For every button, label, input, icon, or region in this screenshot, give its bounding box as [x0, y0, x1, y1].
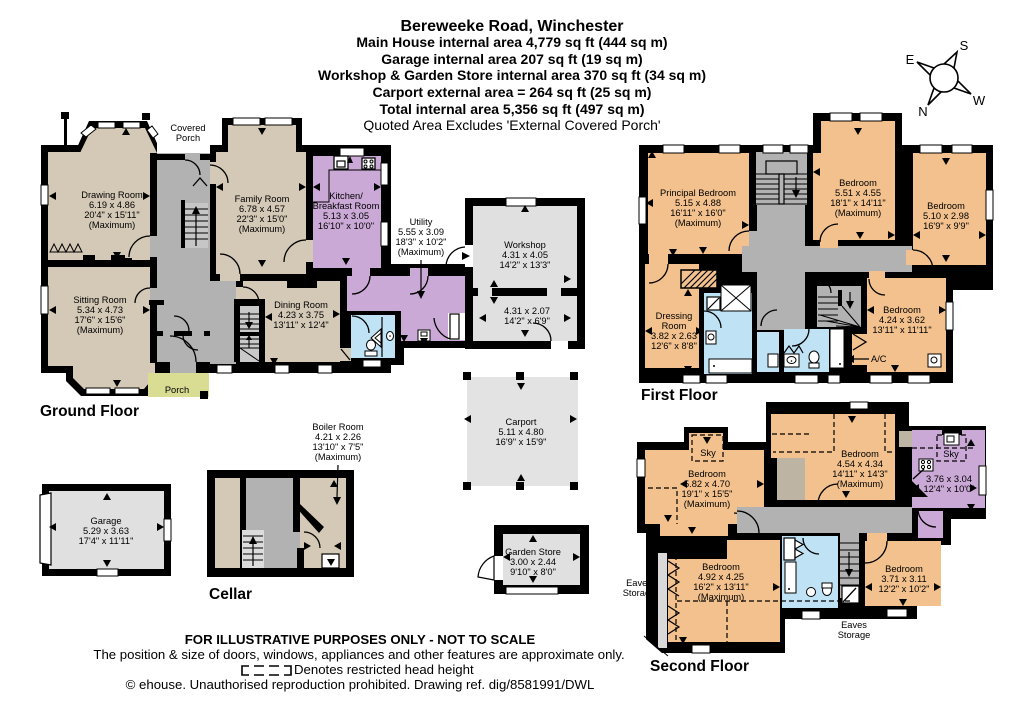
- svg-text:The position & size of doors,: The position & size of doors, windows, a…: [93, 647, 624, 662]
- svg-text:3.71 x 3.11: 3.71 x 3.11: [881, 574, 926, 584]
- svg-text:19'1" x 15'5": 19'1" x 15'5": [682, 489, 733, 499]
- svg-text:12'2" x 10'2": 12'2" x 10'2": [879, 584, 930, 594]
- svg-text:5.15 x 4.88: 5.15 x 4.88: [675, 198, 721, 208]
- svg-text:(Maximum): (Maximum): [398, 247, 444, 257]
- svg-text:12'6" x 8'8": 12'6" x 8'8": [651, 341, 697, 351]
- svg-text:Garage internal area 207 sq ft: Garage internal area 207 sq ft (19 sq m): [381, 51, 642, 67]
- svg-text:4.21 x 2.26: 4.21 x 2.26: [315, 432, 361, 442]
- svg-text:Carport external area = 264 sq: Carport external area = 264 sq ft (25 sq…: [373, 84, 652, 100]
- svg-text:Bedroom: Bedroom: [927, 201, 965, 211]
- svg-text:5.11 x 4.80: 5.11 x 4.80: [498, 427, 543, 437]
- svg-text:Kitchen/: Kitchen/: [329, 191, 363, 201]
- svg-text:Room: Room: [662, 321, 687, 331]
- svg-text:12'4" x 10'0": 12'4" x 10'0": [924, 484, 975, 494]
- svg-text:E: E: [906, 52, 915, 67]
- svg-text:Quoted Area Excludes 'External: Quoted Area Excludes 'External Covered P…: [363, 117, 660, 133]
- svg-text:(Maximum): (Maximum): [239, 224, 285, 234]
- svg-text:4.24 x 3.62: 4.24 x 3.62: [879, 315, 925, 325]
- svg-text:Second Floor: Second Floor: [650, 658, 749, 675]
- svg-text:17'4" x 11'11": 17'4" x 11'11": [79, 536, 134, 546]
- svg-text:16'10" x 10'0": 16'10" x 10'0": [318, 221, 374, 231]
- svg-text:Bereweeke Road, Winchester: Bereweeke Road, Winchester: [400, 18, 623, 35]
- svg-text:Garden Store: Garden Store: [505, 547, 561, 557]
- svg-text:Drawing Room: Drawing Room: [81, 190, 143, 200]
- svg-text:Bedroom: Bedroom: [841, 449, 879, 459]
- svg-text:A/C: A/C: [871, 354, 887, 364]
- svg-text:Carport: Carport: [505, 417, 536, 427]
- svg-text:Workshop & Garden Store intern: Workshop & Garden Store internal area 37…: [318, 67, 706, 83]
- svg-text:18'3" x 10'2": 18'3" x 10'2": [396, 237, 447, 247]
- svg-text:Total internal area 5,356 sq f: Total internal area 5,356 sq ft (497 sq …: [379, 101, 644, 117]
- svg-text:16'9" x 15'9": 16'9" x 15'9": [496, 437, 547, 447]
- svg-text:Sky: Sky: [943, 449, 959, 459]
- svg-text:16'11" x 16'0": 16'11" x 16'0": [670, 208, 725, 218]
- svg-text:5.82 x 4.70: 5.82 x 4.70: [684, 479, 730, 489]
- svg-text:Main House internal area 4,779: Main House internal area 4,779 sq ft (44…: [356, 34, 667, 50]
- svg-text:Principal Bedroom: Principal Bedroom: [660, 188, 736, 198]
- svg-text:W: W: [973, 93, 986, 108]
- svg-text:(Maximum): (Maximum): [89, 220, 135, 230]
- svg-text:Cellar: Cellar: [209, 586, 252, 603]
- svg-text:16'9" x 9'9": 16'9" x 9'9": [923, 221, 969, 231]
- svg-text:(Maximum): (Maximum): [315, 452, 361, 462]
- svg-text:Eaves: Eaves: [626, 578, 652, 588]
- svg-text:© ehouse. Unauthorised reprodu: © ehouse. Unauthorised reproduction proh…: [126, 677, 595, 692]
- svg-text:13'11" x 12'4": 13'11" x 12'4": [273, 320, 328, 330]
- svg-text:5.29 x 3.63: 5.29 x 3.63: [83, 526, 129, 536]
- svg-text:14'2" x 6'9": 14'2" x 6'9": [504, 316, 550, 326]
- svg-text:5.55 x 3.09: 5.55 x 3.09: [398, 227, 444, 237]
- svg-text:Storage: Storage: [838, 630, 871, 640]
- svg-text:3.00 x 2.44: 3.00 x 2.44: [510, 557, 556, 567]
- svg-text:13'11" x 11'11": 13'11" x 11'11": [872, 325, 931, 335]
- svg-text:5.51 x 4.55: 5.51 x 4.55: [835, 188, 881, 198]
- svg-text:4.31 x 2.07: 4.31 x 2.07: [504, 306, 550, 316]
- svg-text:Storage: Storage: [623, 588, 656, 598]
- svg-text:5.10 x 2.98: 5.10 x 2.98: [923, 211, 969, 221]
- svg-text:Utility: Utility: [410, 217, 433, 227]
- svg-text:S: S: [960, 38, 969, 53]
- svg-text:4.54 x 4.34: 4.54 x 4.34: [837, 459, 883, 469]
- svg-text:Sky: Sky: [700, 448, 716, 458]
- svg-text:9'10" x 8'0": 9'10" x 8'0": [510, 567, 556, 577]
- svg-text:Ground Floor: Ground Floor: [40, 403, 139, 420]
- svg-text:(Maximum): (Maximum): [684, 499, 730, 509]
- svg-text:Eaves: Eaves: [841, 620, 867, 630]
- svg-text:4.92 x 4.25: 4.92 x 4.25: [698, 572, 744, 582]
- svg-text:Porch: Porch: [165, 385, 189, 395]
- svg-text:6.19 x 4.86: 6.19 x 4.86: [89, 200, 135, 210]
- svg-text:(Maximum): (Maximum): [837, 479, 883, 489]
- svg-text:First Floor: First Floor: [641, 387, 718, 404]
- svg-text:Bedroom: Bedroom: [883, 305, 921, 315]
- svg-text:18'1" x 14'11": 18'1" x 14'11": [830, 198, 885, 208]
- svg-text:17'6" x 15'6": 17'6" x 15'6": [75, 315, 126, 325]
- svg-text:Denotes restricted head height: Denotes restricted head height: [294, 662, 474, 677]
- svg-text:3.76 x 3.04: 3.76 x 3.04: [926, 474, 972, 484]
- svg-text:5.13 x 3.05: 5.13 x 3.05: [323, 211, 369, 221]
- svg-text:6.78 x 4.57: 6.78 x 4.57: [239, 204, 285, 214]
- svg-text:22'3" x 15'0": 22'3" x 15'0": [237, 214, 288, 224]
- svg-text:(Maximum): (Maximum): [77, 325, 123, 335]
- svg-text:Bedroom: Bedroom: [839, 178, 877, 188]
- svg-text:13'10" x 7'5": 13'10" x 7'5": [313, 442, 364, 452]
- svg-text:Dressing: Dressing: [656, 311, 693, 321]
- svg-text:Bedroom: Bedroom: [702, 562, 740, 572]
- svg-text:4.31 x 4.05: 4.31 x 4.05: [502, 250, 548, 260]
- svg-text:Dining Room: Dining Room: [274, 300, 328, 310]
- svg-text:4.23 x 3.75: 4.23 x 3.75: [278, 310, 324, 320]
- svg-text:Covered: Covered: [170, 123, 205, 133]
- svg-text:5.34 x 4.73: 5.34 x 4.73: [77, 305, 123, 315]
- svg-text:Family Room: Family Room: [235, 194, 290, 204]
- svg-text:(Maximum): (Maximum): [835, 208, 881, 218]
- svg-text:N: N: [918, 104, 927, 119]
- svg-text:Sitting Room: Sitting Room: [73, 295, 126, 305]
- svg-text:Bedroom: Bedroom: [885, 564, 923, 574]
- svg-text:FOR ILLUSTRATIVE PURPOSES ONLY: FOR ILLUSTRATIVE PURPOSES ONLY - NOT TO …: [185, 632, 536, 647]
- svg-text:Bedroom: Bedroom: [688, 469, 726, 479]
- svg-text:Breakfast Room: Breakfast Room: [313, 201, 380, 211]
- svg-text:(Maximum): (Maximum): [675, 218, 721, 228]
- svg-text:14'2" x 13'3": 14'2" x 13'3": [500, 260, 551, 270]
- svg-text:Boiler Room: Boiler Room: [312, 422, 363, 432]
- svg-text:14'11" x 14'3": 14'11" x 14'3": [832, 469, 887, 479]
- svg-text:20'4" x 15'11": 20'4" x 15'11": [84, 210, 139, 220]
- svg-text:3.82 x 2.63: 3.82 x 2.63: [651, 331, 697, 341]
- svg-text:Workshop: Workshop: [504, 240, 546, 250]
- svg-text:16'2" x 13'11": 16'2" x 13'11": [693, 582, 748, 592]
- svg-text:Porch: Porch: [176, 133, 200, 143]
- svg-text:Garage: Garage: [90, 516, 121, 526]
